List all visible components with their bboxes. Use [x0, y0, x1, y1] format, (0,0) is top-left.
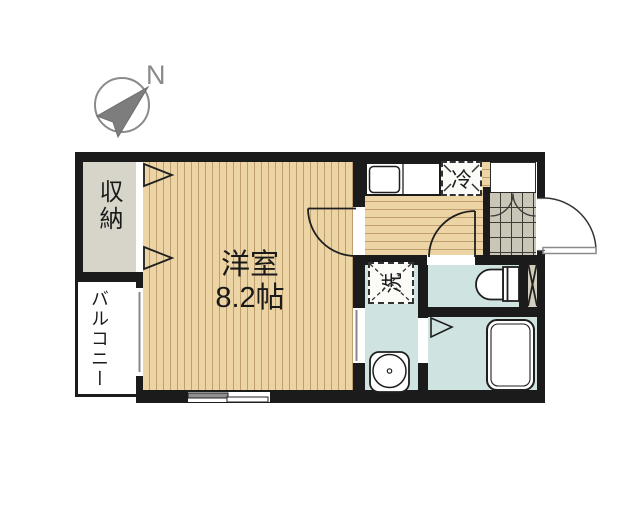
toilet-fixture [476, 267, 519, 301]
closet-label: 収納 [96, 179, 120, 233]
entrance-door-swing [537, 198, 596, 254]
kitchen-sink [370, 163, 404, 195]
bedroom-window [188, 393, 268, 402]
washer-x-mark [370, 264, 411, 302]
western-room-size-label: 8.2帖 [170, 274, 330, 316]
bathroom-folding-door-icon [431, 318, 452, 337]
pipe-shaft-x-mark [528, 263, 537, 306]
closet-folding-door-icon [144, 164, 172, 269]
washbasin [370, 352, 409, 392]
bathtub [487, 320, 534, 390]
toilet-door-swing [429, 211, 475, 257]
balcony-label: バルコニー [90, 289, 108, 389]
compass-north-label: N [146, 60, 166, 91]
compass-icon [95, 78, 149, 137]
refrigerator-corner-ticks [444, 165, 479, 191]
shoe-cabinet-door-swing [491, 194, 536, 217]
floor-plan: 冷 洗 [0, 0, 640, 512]
